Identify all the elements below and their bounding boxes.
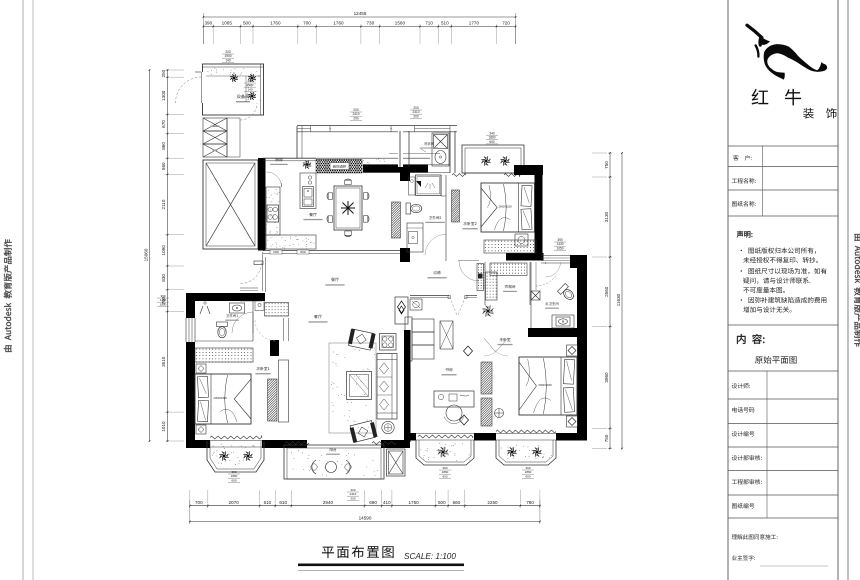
- svg-text:1010: 1010: [161, 421, 166, 432]
- svg-text:670: 670: [161, 120, 166, 128]
- svg-text:1750: 1750: [408, 500, 419, 505]
- svg-text:2000X2000: 2000X2000: [538, 383, 552, 387]
- svg-text:720: 720: [502, 21, 510, 26]
- svg-text:750: 750: [604, 434, 609, 442]
- svg-text:3510: 3510: [161, 356, 166, 367]
- svg-text:560: 560: [161, 162, 166, 170]
- svg-text:1560: 1560: [395, 21, 406, 26]
- svg-text:1000: 1000: [160, 302, 167, 306]
- svg-text:1090: 1090: [161, 245, 166, 256]
- svg-text:2340: 2340: [273, 250, 279, 254]
- svg-text:2560: 2560: [604, 286, 609, 297]
- svg-text:14590: 14590: [359, 516, 372, 521]
- svg-text:600: 600: [489, 140, 495, 144]
- svg-text:860: 860: [161, 142, 166, 150]
- svg-text:2000X1500: 2000X1500: [498, 205, 512, 209]
- svg-text:780: 780: [526, 500, 534, 505]
- svg-text:200: 200: [350, 496, 355, 500]
- svg-text:1300: 1300: [161, 90, 166, 101]
- svg-text:3960: 3960: [604, 372, 609, 383]
- svg-text:12455: 12455: [354, 11, 367, 16]
- svg-text:140: 140: [225, 58, 231, 62]
- svg-text:750: 750: [604, 161, 609, 169]
- svg-text:2000X1800: 2000X1800: [214, 396, 228, 400]
- svg-text:830: 830: [161, 274, 166, 282]
- svg-text:600: 600: [442, 474, 447, 478]
- svg-text:15060: 15060: [143, 248, 148, 261]
- svg-text:1065: 1065: [222, 21, 233, 26]
- svg-text:1770: 1770: [469, 21, 480, 26]
- svg-text:690: 690: [369, 500, 377, 505]
- svg-text:500: 500: [243, 21, 251, 26]
- svg-text:660: 660: [453, 500, 461, 505]
- svg-text:11630: 11630: [616, 293, 621, 306]
- svg-text:610: 610: [279, 500, 287, 505]
- svg-text:200: 200: [413, 114, 419, 118]
- svg-text:410: 410: [383, 500, 391, 505]
- svg-text:SCALE: 1:100: SCALE: 1:100: [404, 552, 456, 561]
- svg-text:610: 610: [264, 500, 272, 505]
- svg-text:390: 390: [204, 21, 212, 26]
- svg-text:2250: 2250: [487, 500, 498, 505]
- svg-text:2040: 2040: [300, 250, 306, 254]
- svg-text:200: 200: [353, 116, 359, 120]
- svg-text:250: 250: [161, 69, 166, 77]
- svg-text:510: 510: [441, 21, 449, 26]
- svg-text:600: 600: [525, 474, 530, 478]
- svg-text:1050: 1050: [556, 246, 563, 250]
- svg-text:600: 600: [231, 478, 236, 482]
- svg-text:500: 500: [438, 500, 446, 505]
- svg-text:730: 730: [366, 21, 374, 26]
- svg-text:1760: 1760: [333, 21, 344, 26]
- svg-text:1760: 1760: [270, 21, 281, 26]
- svg-text:3130: 3130: [604, 211, 609, 222]
- svg-text:140: 140: [247, 87, 252, 91]
- svg-text:2110: 2110: [161, 199, 166, 209]
- svg-text:710: 710: [425, 21, 433, 26]
- svg-text:2070: 2070: [229, 500, 240, 505]
- svg-text:2940: 2940: [323, 500, 334, 505]
- svg-text:700: 700: [195, 500, 203, 505]
- svg-text:700: 700: [303, 21, 311, 26]
